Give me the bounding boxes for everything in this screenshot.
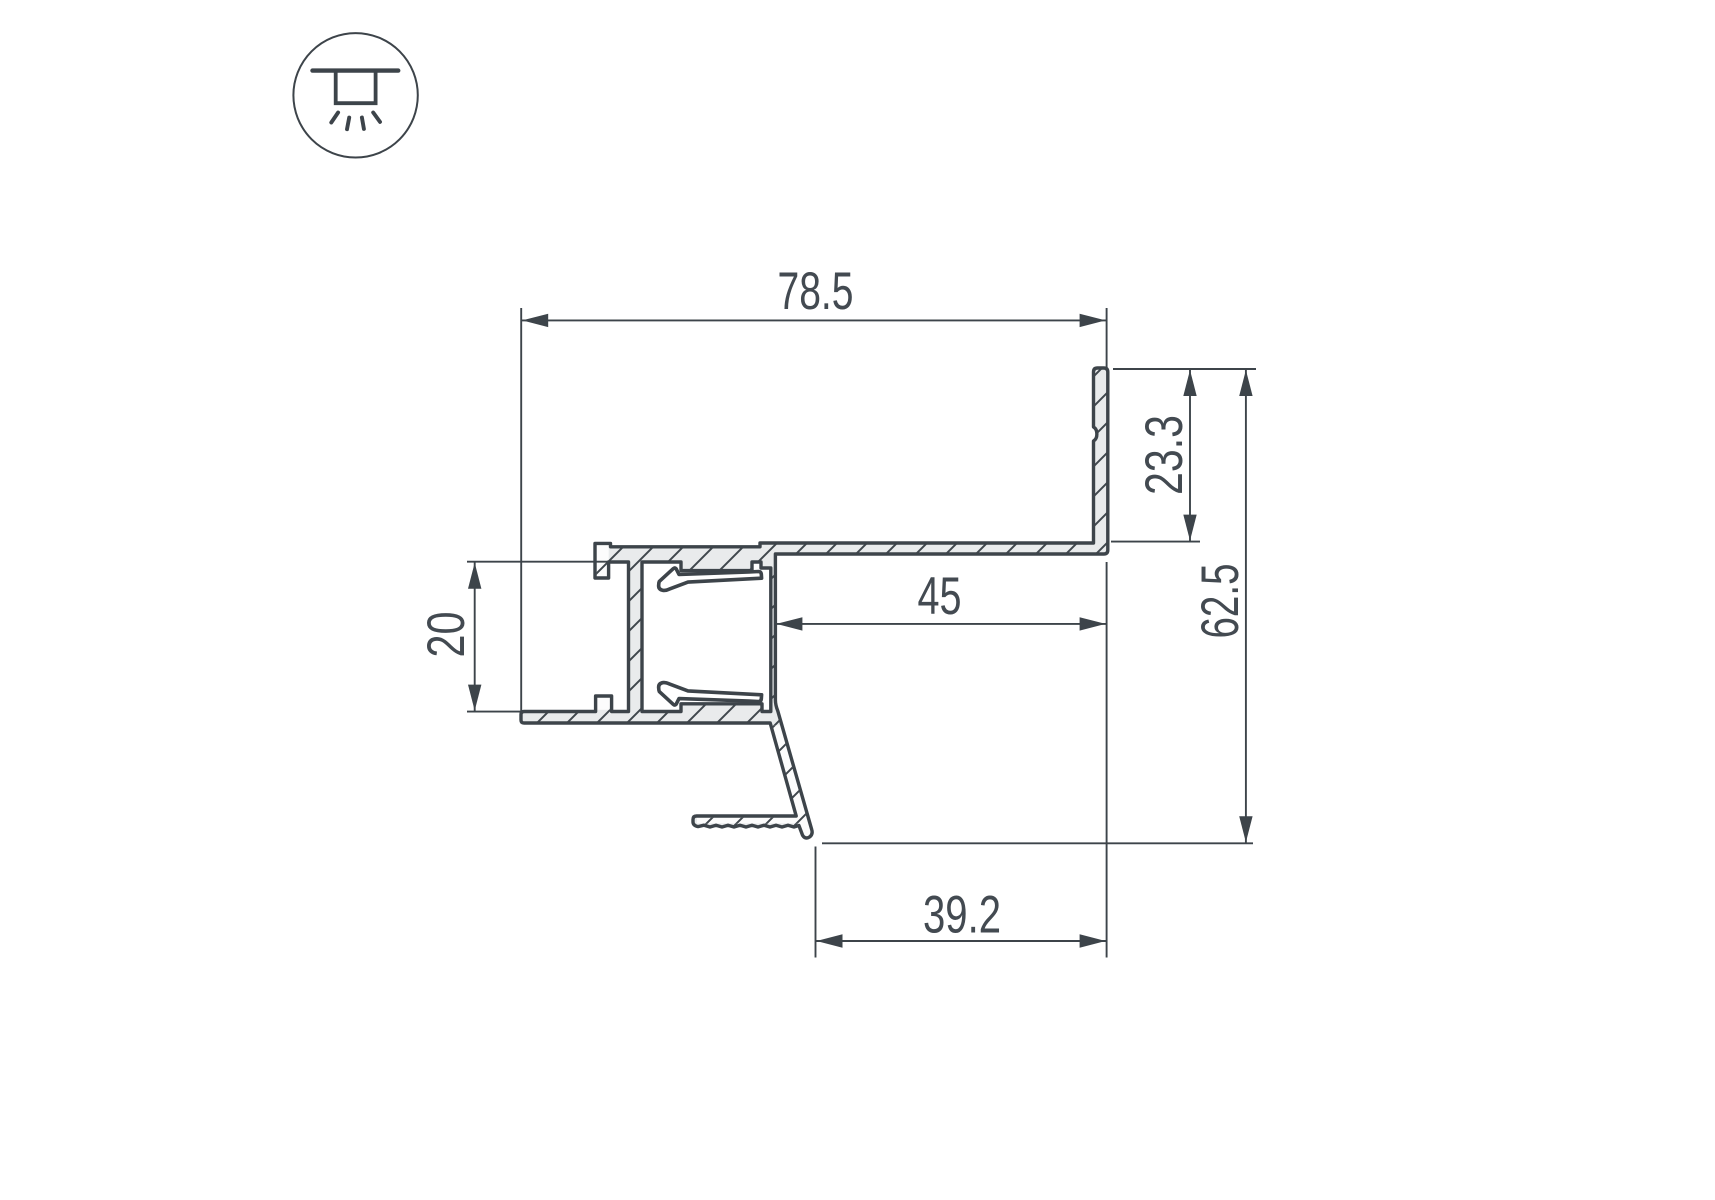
svg-text:20: 20	[417, 612, 476, 658]
svg-text:39.2: 39.2	[923, 886, 1001, 945]
svg-text:78.5: 78.5	[778, 262, 854, 321]
svg-text:45: 45	[918, 567, 962, 626]
svg-text:23.3: 23.3	[1135, 415, 1194, 495]
svg-text:62.5: 62.5	[1191, 564, 1250, 639]
